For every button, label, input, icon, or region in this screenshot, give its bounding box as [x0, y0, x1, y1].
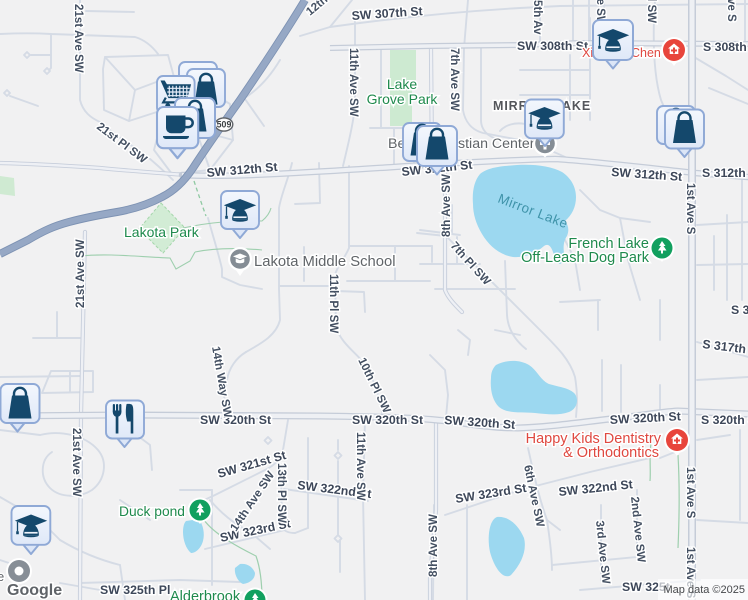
svg-text:5th Av: 5th Av	[531, 0, 544, 35]
svg-text:11th Ave SW: 11th Ave SW	[354, 432, 367, 501]
svg-text:1st Ave S: 1st Ave S	[684, 467, 697, 519]
svg-text:21st Ave SW: 21st Ave SW	[70, 428, 83, 497]
svg-text:11th Pl SW: 11th Pl SW	[327, 274, 340, 333]
svg-text:8th Ave SW: 8th Ave SW	[427, 514, 440, 577]
svg-text:Grove Park: Grove Park	[367, 91, 439, 107]
svg-text:e: e	[0, 569, 4, 584]
svg-text:Map data ©2025: Map data ©2025	[664, 584, 746, 596]
svg-text:S 320th St: S 320th St	[701, 413, 748, 427]
svg-text:11th Ave SW: 11th Ave SW	[347, 48, 360, 117]
svg-text:Chen: Chen	[631, 46, 661, 60]
svg-text:Duck pond: Duck pond	[119, 504, 185, 519]
svg-text:S 308th St: S 308th St	[703, 40, 748, 54]
svg-text:l SW: l SW	[645, 0, 658, 23]
svg-text:SW 320th St: SW 320th St	[352, 413, 423, 427]
svg-text:Google: Google	[7, 582, 62, 599]
svg-text:Xi: Xi	[582, 46, 593, 60]
svg-text:Lakota Middle School: Lakota Middle School	[254, 254, 395, 270]
svg-text:stian Center: stian Center	[458, 136, 535, 152]
svg-text:13th Pl SW: 13th Pl SW	[275, 463, 288, 523]
svg-text:SW 325th Pl: SW 325th Pl	[100, 583, 170, 597]
svg-text:1st Ave S: 1st Ave S	[684, 183, 697, 235]
svg-text:Lakota Park: Lakota Park	[124, 224, 200, 240]
svg-text:Ave S: Ave S	[725, 0, 738, 22]
svg-text:S 312th St: S 312th St	[702, 166, 748, 180]
svg-text:7th Ave SW: 7th Ave SW	[448, 48, 461, 111]
svg-text:Off-Leash Dog Park: Off-Leash Dog Park	[521, 250, 650, 266]
svg-text:& Orthodontics: & Orthodontics	[563, 445, 659, 461]
svg-text:21st Ave SW: 21st Ave SW	[72, 4, 85, 73]
svg-text:509: 509	[217, 120, 232, 130]
svg-text:SW 320th St: SW 320th St	[200, 413, 271, 427]
svg-text:Alderbrook: Alderbrook	[170, 589, 241, 600]
svg-text:SW 308th St: SW 308th St	[517, 39, 588, 53]
svg-text:8th Ave SW: 8th Ave SW	[440, 174, 453, 237]
svg-text:S 3: S 3	[731, 303, 748, 317]
svg-text:21st Ave SW: 21st Ave SW	[74, 239, 87, 308]
svg-text:Lake: Lake	[387, 76, 418, 92]
